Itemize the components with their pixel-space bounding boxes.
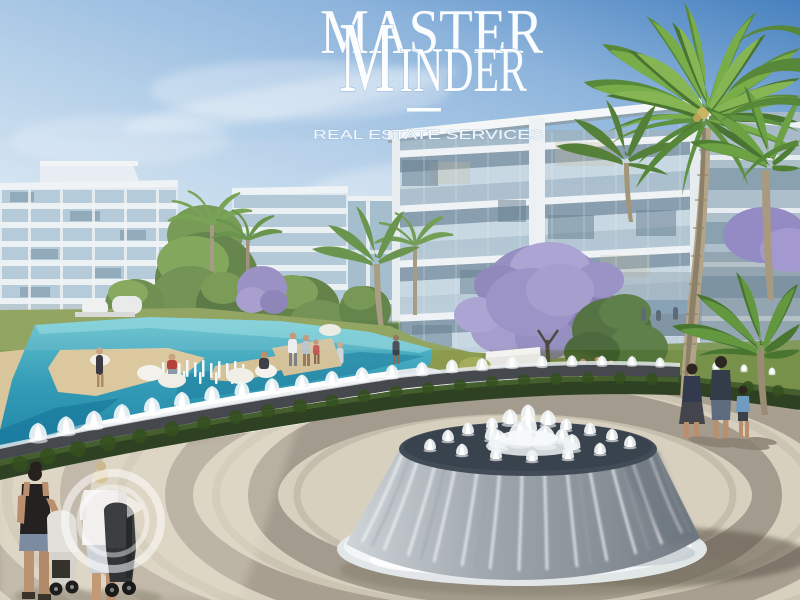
svg-text:REAL ESTATE SERVICES: REAL ESTATE SERVICES <box>313 127 543 142</box>
svg-text:INDER: INDER <box>399 35 527 105</box>
svg-text:M: M <box>339 1 395 113</box>
